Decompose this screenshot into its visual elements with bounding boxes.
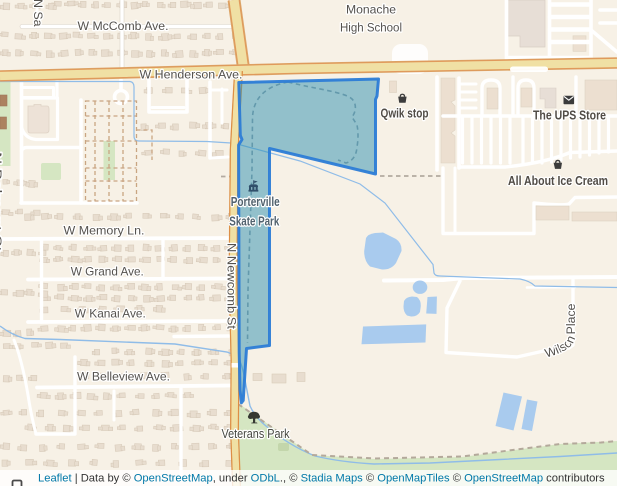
svg-text:All About Ice Cream: All About Ice Cream xyxy=(508,173,608,188)
svg-text:W McComb Ave.: W McComb Ave. xyxy=(78,19,169,33)
svg-text:W Henderson Ave.: W Henderson Ave. xyxy=(140,68,243,82)
svg-text:Monache: Monache xyxy=(346,3,396,17)
svg-text:Qwik stop: Qwik stop xyxy=(381,106,429,121)
svg-text:Leaflet | Data by © OpenStreet: Leaflet | Data by © OpenStreetMap, under… xyxy=(38,473,605,485)
svg-text:W Belleview Ave.: W Belleview Ave. xyxy=(77,370,170,384)
svg-text:N Newcomb St: N Newcomb St xyxy=(225,243,239,330)
svg-text:W Grand Ave.: W Grand Ave. xyxy=(71,265,144,279)
svg-text:N Belmont St.: N Belmont St. xyxy=(0,152,2,256)
svg-text:High School: High School xyxy=(340,21,402,35)
svg-text:W Kanai Ave.: W Kanai Ave. xyxy=(75,307,146,321)
svg-text:Veterans Park: Veterans Park xyxy=(222,427,291,441)
svg-text:Porterville: Porterville xyxy=(231,195,280,209)
svg-text:Skate Park: Skate Park xyxy=(229,215,280,229)
svg-text:The UPS Store: The UPS Store xyxy=(533,107,606,122)
svg-text:N Sa: N Sa xyxy=(31,0,45,27)
svg-text:W Memory Ln.: W Memory Ln. xyxy=(64,224,145,238)
